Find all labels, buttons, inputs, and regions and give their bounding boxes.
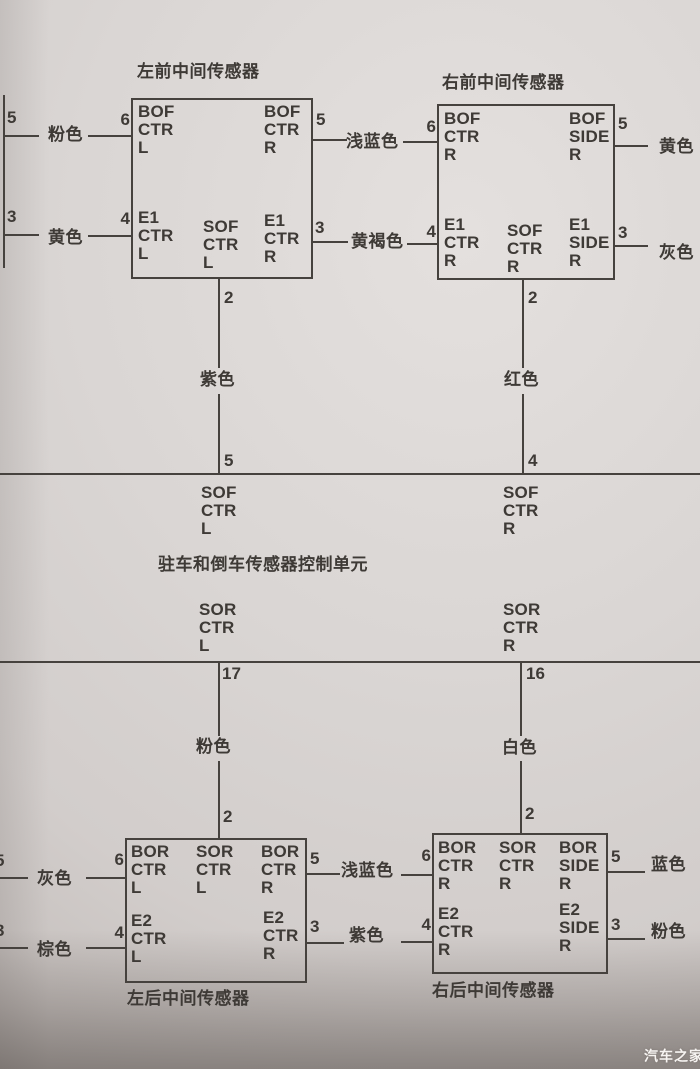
wire-label-yellow: 黄色 (659, 136, 694, 157)
port-e1-ctr-r: E1 CTR R (264, 212, 300, 266)
pin-number: 3 (315, 218, 324, 237)
wire (401, 874, 432, 876)
wire (86, 877, 125, 879)
pin-number: 3 (310, 917, 319, 936)
wire (407, 243, 437, 245)
port-sof-ctr-r: SOF CTR R (507, 222, 543, 276)
wire-label-purple: 紫色 (349, 925, 384, 946)
wire (615, 145, 648, 147)
wire (88, 235, 131, 237)
wire (401, 941, 432, 943)
pin-number: 5 (316, 110, 325, 129)
wire-label-light-blue: 浅蓝色 (346, 131, 399, 152)
wire-label-white: 白色 (502, 737, 537, 758)
wire-label-tan: 黄褐色 (351, 231, 404, 252)
pin-number: 17 (222, 664, 241, 683)
wire-label-red: 红色 (504, 369, 539, 390)
port-sor-ctr-l: SOR CTR L (199, 601, 236, 655)
wire (218, 663, 220, 736)
wire (88, 135, 131, 137)
port-bof-side-r: BOF SIDE R (569, 110, 609, 164)
pin-number: 5 (0, 851, 4, 870)
pin-number: 5 (224, 451, 233, 470)
port-e1-side-r: E1 SIDE R (569, 216, 609, 270)
wire (403, 141, 437, 143)
port-e1-ctr-r: E1 CTR R (444, 216, 480, 270)
pin-number: 6 (410, 117, 436, 136)
pin-number: 2 (528, 288, 537, 307)
pin-number: 2 (223, 807, 232, 826)
pin-number: 4 (528, 451, 537, 470)
front-left-sensor-title: 左前中间传感器 (137, 61, 260, 82)
pin-number: 3 (611, 915, 620, 934)
wire (522, 280, 524, 368)
port-sor-ctr-r: SOR CTR R (503, 601, 540, 655)
wire (520, 761, 522, 834)
control-unit-title: 驻车和倒车传感器控制单元 (158, 554, 368, 575)
port-bof-ctr-r: BOF CTR R (444, 110, 480, 164)
pin-number: 6 (405, 846, 431, 865)
port-bof-ctr-l: BOF CTR L (138, 103, 174, 157)
wire-label-purple: 紫色 (200, 369, 235, 390)
wire (218, 761, 220, 839)
wire (313, 139, 347, 141)
pin-number: 4 (410, 222, 436, 241)
port-bor-ctr-r: BOR CTR R (261, 843, 299, 897)
wire (218, 394, 220, 474)
wire-label-gray: 灰色 (659, 242, 694, 263)
wire (307, 873, 340, 875)
wire-stub (3, 135, 39, 137)
wire-label-pink: 粉色 (48, 124, 83, 145)
wire-label-blue: 蓝色 (651, 854, 686, 875)
wire (307, 942, 344, 944)
port-sof-ctr-l: SOF CTR L (203, 218, 239, 272)
port-bor-side-r: BOR SIDE R (559, 839, 599, 893)
pin-number: 4 (98, 923, 124, 942)
port-sor-ctr-r: SOR CTR R (499, 839, 536, 893)
pin-number: 5 (618, 114, 627, 133)
wiring-diagram-photo: 左前中间传感器 右前中间传感器 驻车和倒车传感器控制单元 左后中间传感器 右后中… (0, 0, 700, 1069)
port-e2-ctr-r: E2 CTR R (438, 905, 474, 959)
pin-number: 4 (405, 915, 431, 934)
pin-number: 5 (310, 849, 319, 868)
control-unit-bottom-edge (0, 661, 700, 663)
wire (86, 947, 125, 949)
left-connector-edge (3, 95, 5, 268)
pin-number: 2 (525, 804, 534, 823)
port-e2-ctr-l: E2 CTR L (131, 912, 167, 966)
wire-label-pink: 粉色 (196, 736, 231, 757)
pin-number: 3 (618, 223, 627, 242)
control-unit-top-edge (0, 473, 700, 475)
pin-number: 4 (104, 209, 130, 228)
wire (522, 394, 524, 474)
wire-stub (3, 234, 39, 236)
port-e1-ctr-l: E1 CTR L (138, 209, 174, 263)
pin-number: 5 (7, 108, 16, 127)
wire (218, 279, 220, 368)
rear-left-sensor-title: 左后中间传感器 (127, 988, 250, 1009)
pin-number: 3 (0, 921, 4, 940)
wire-label-light-blue: 浅蓝色 (341, 860, 394, 881)
rear-right-sensor-title: 右后中间传感器 (432, 980, 555, 1001)
wire-label-gray: 灰色 (37, 868, 72, 889)
pin-number: 16 (526, 664, 545, 683)
wire (313, 241, 348, 243)
pin-number: 6 (98, 850, 124, 869)
wire (520, 663, 522, 736)
pin-number: 2 (224, 288, 233, 307)
wire-stub (0, 947, 28, 949)
port-bor-ctr-r: BOR CTR R (438, 839, 476, 893)
wire (615, 245, 648, 247)
pin-number: 5 (611, 847, 620, 866)
port-bor-ctr-l: BOR CTR L (131, 843, 169, 897)
port-e2-ctr-r: E2 CTR R (263, 909, 299, 963)
pin-number: 6 (104, 110, 130, 129)
port-bof-ctr-r: BOF CTR R (264, 103, 300, 157)
port-sof-ctr-r: SOF CTR R (503, 484, 539, 538)
wire (608, 938, 645, 940)
wire-stub (0, 877, 28, 879)
wire (608, 871, 645, 873)
wire-label-pink: 粉色 (651, 921, 686, 942)
front-right-sensor-title: 右前中间传感器 (442, 72, 565, 93)
pin-number: 3 (7, 207, 16, 226)
port-e2-side-r: E2 SIDE R (559, 901, 599, 955)
watermark: 汽车之家 (644, 1046, 700, 1066)
wire-label-brown: 棕色 (37, 939, 72, 960)
port-sof-ctr-l: SOF CTR L (201, 484, 237, 538)
port-sor-ctr-l: SOR CTR L (196, 843, 233, 897)
wire-label-yellow: 黄色 (48, 227, 83, 248)
